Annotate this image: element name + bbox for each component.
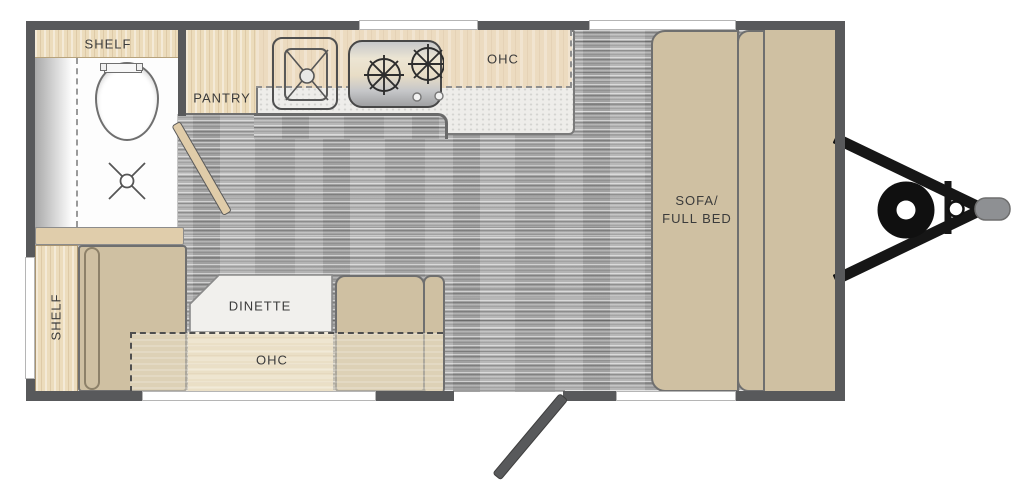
window <box>142 391 376 401</box>
hitch-coupler-icon <box>975 198 1010 220</box>
wall-left <box>26 21 35 258</box>
shelf-label-top: SHELF <box>85 37 132 52</box>
toilet-tank-tab <box>100 63 107 71</box>
sink-icon <box>272 37 338 110</box>
sofa-label-line2: FULL BED <box>662 210 732 228</box>
ohc-dinette-label: OHC <box>256 353 288 368</box>
shower-curtain-icon <box>76 58 78 227</box>
shelf-label-left: SHELF <box>49 294 64 341</box>
shower-area <box>35 58 77 227</box>
wall-left <box>26 378 35 401</box>
toilet-tank-tab <box>136 63 143 71</box>
sofa-rear-panel <box>763 30 835 392</box>
pantry-label: PANTRY <box>193 91 251 106</box>
stove-icon <box>348 40 442 108</box>
wall-top <box>735 21 845 30</box>
wall-bottom <box>735 391 845 401</box>
sink-drain-lines <box>274 39 340 112</box>
entry-door-sill <box>453 390 565 391</box>
hitch-a-frame-icon <box>833 128 1013 288</box>
sofa-backrest <box>737 30 765 392</box>
bathroom-cabinet <box>35 227 184 245</box>
dinette-armrest <box>84 247 100 390</box>
window <box>616 391 736 401</box>
entry-door-icon <box>492 393 568 481</box>
sofa-label: SOFA/ FULL BED <box>662 192 732 228</box>
window <box>589 20 736 30</box>
wall-bottom <box>26 391 143 401</box>
stove-burner-icon <box>350 42 444 110</box>
wall-top <box>26 21 360 30</box>
window <box>25 257 35 379</box>
wall-top <box>477 21 590 30</box>
wall-bottom <box>375 391 454 401</box>
floorplan-canvas: SHELF PANTRY OHC SHELF DINETTE OHC SOFA/… <box>0 0 1024 493</box>
wall-bottom <box>563 391 618 401</box>
dinette-label: DINETTE <box>229 299 292 314</box>
ohc-kitchen-label: OHC <box>487 52 519 67</box>
shower-drain-icon <box>105 159 149 203</box>
counter-step <box>254 113 448 139</box>
pantry-wall <box>178 28 186 116</box>
window <box>359 20 478 30</box>
wall-right <box>835 21 845 401</box>
sofa-label-line1: SOFA/ <box>662 192 732 210</box>
